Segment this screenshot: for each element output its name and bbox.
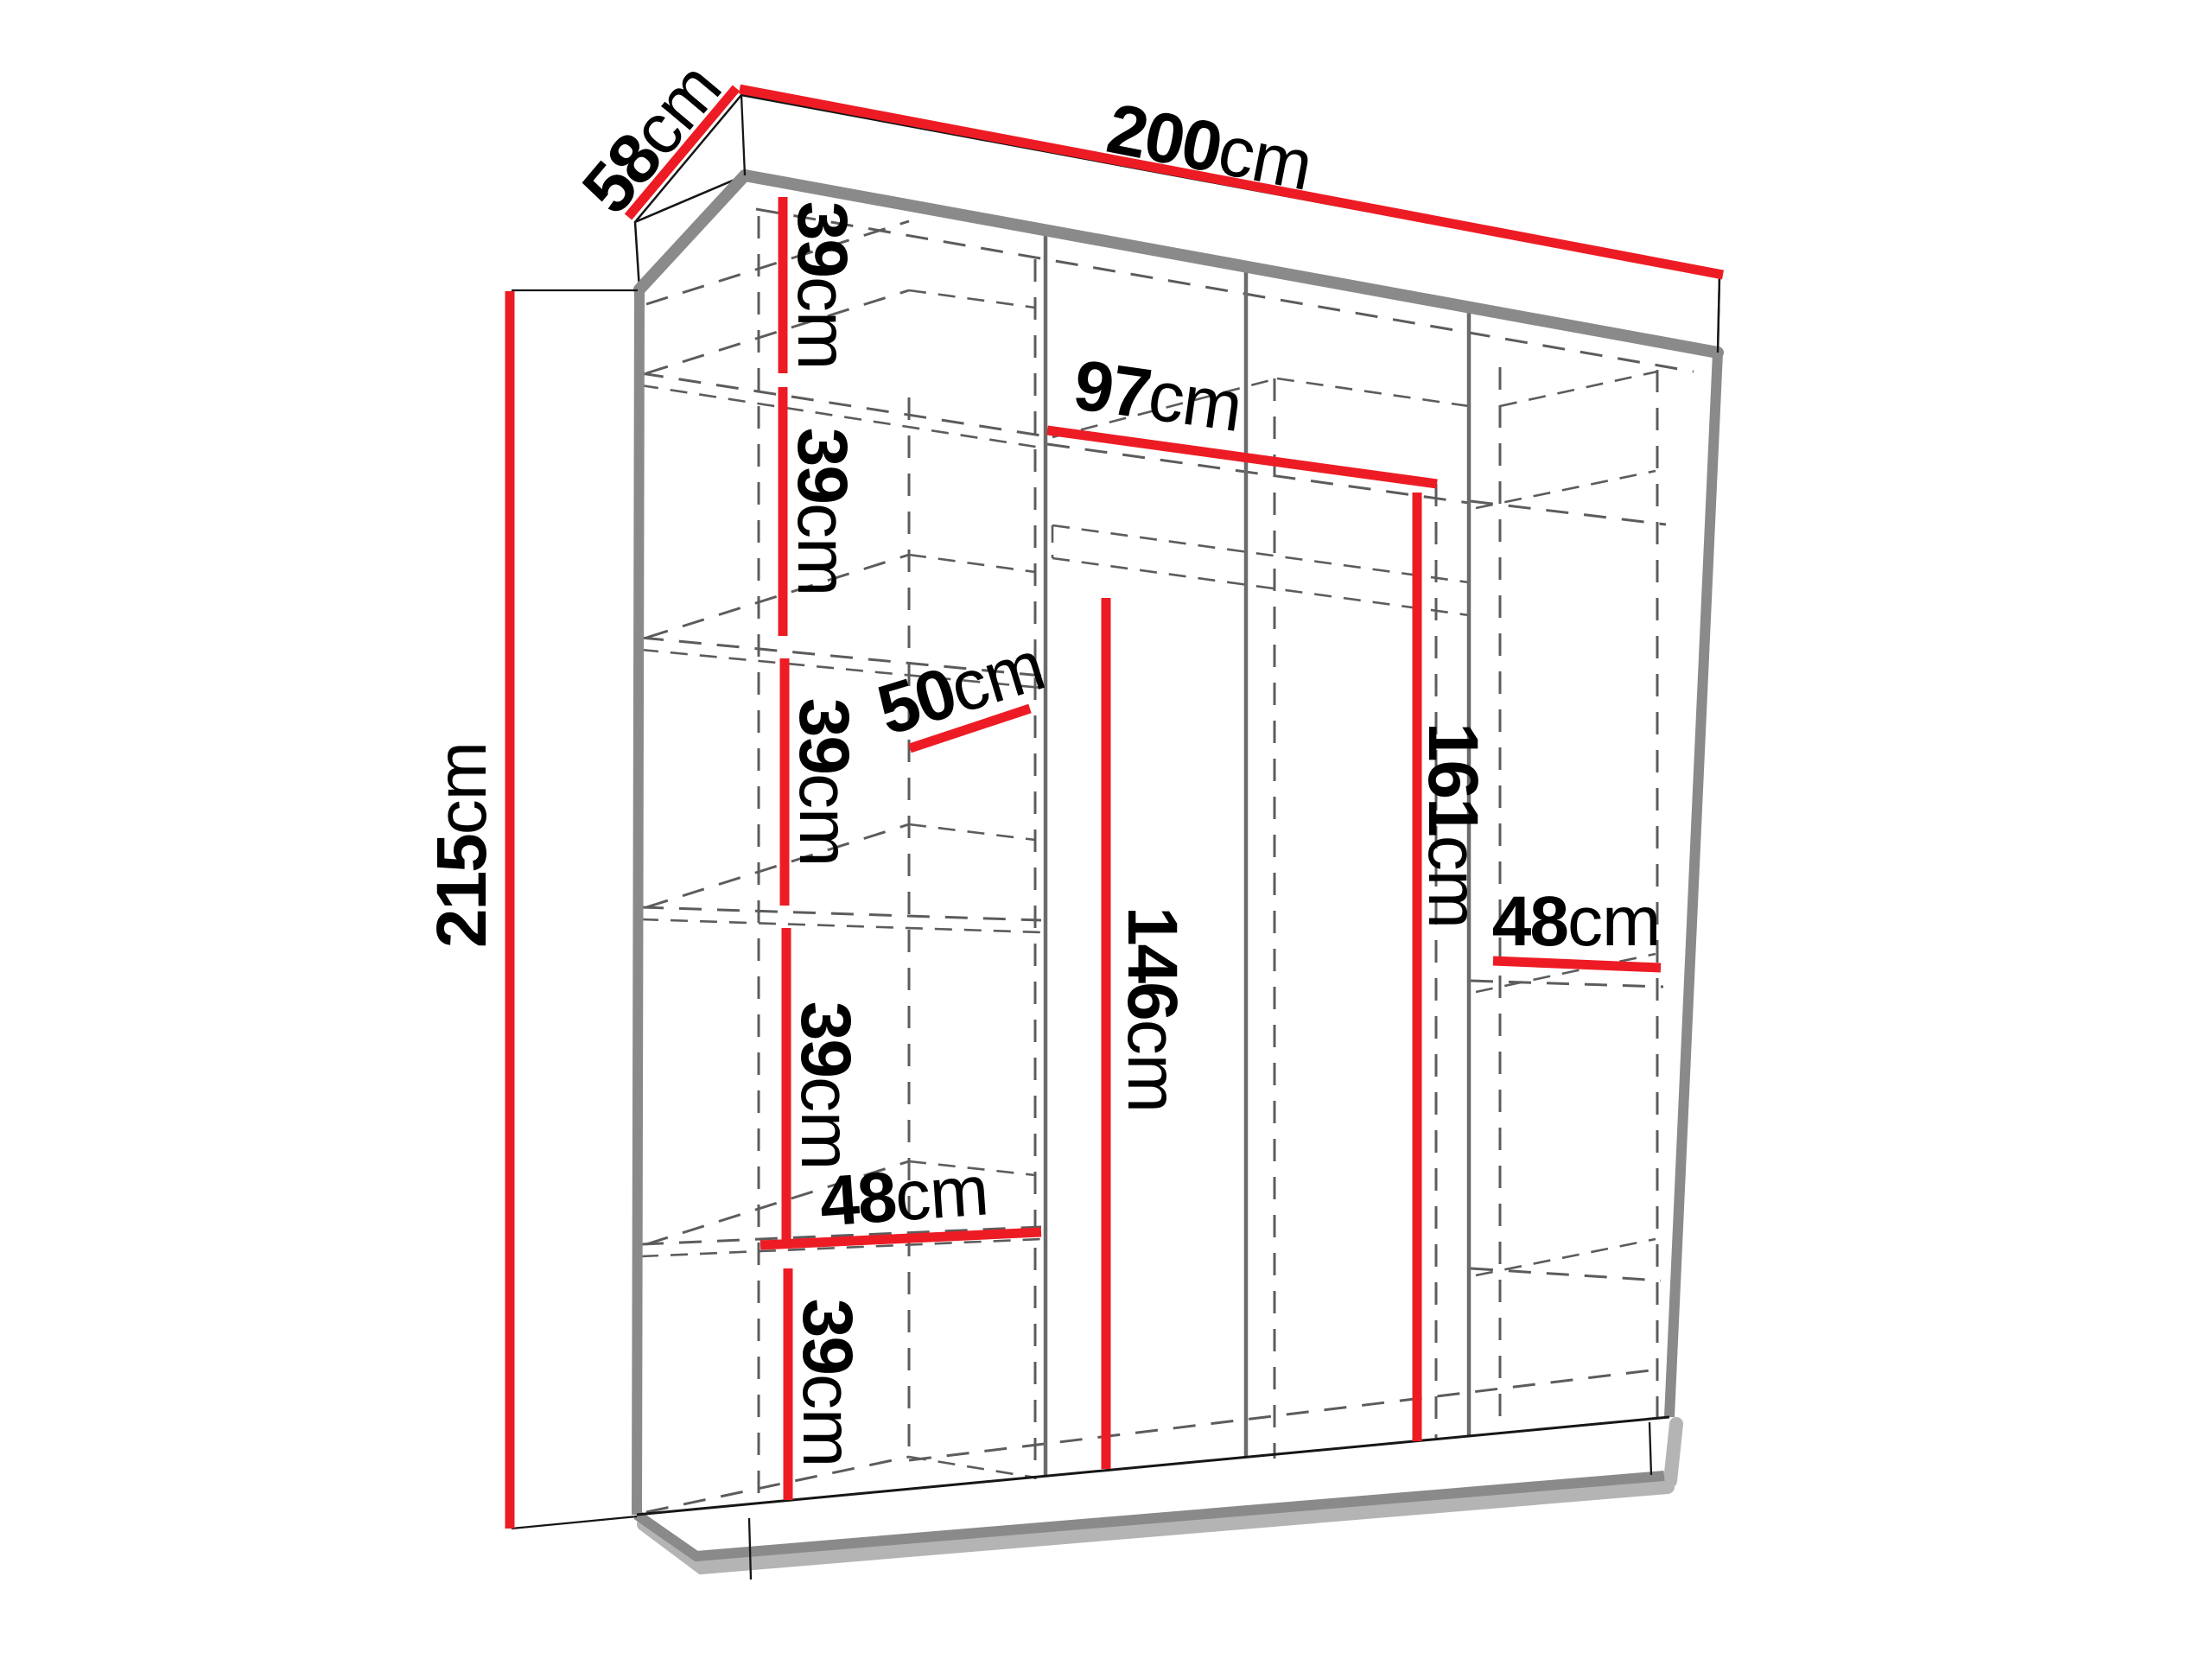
dimension-inner-height-left-label: 146cm — [1114, 906, 1192, 1112]
dimension-inner-height-right-label: 161cm — [1414, 722, 1493, 928]
dimension-shelf-width-right: 48cm — [1492, 882, 1661, 969]
dimension-shelf1-label: 39cm — [784, 201, 862, 370]
dimension-height: 215cm — [423, 291, 511, 1529]
dimension-shelf2-label: 39cm — [784, 428, 862, 596]
dimension-shelf3-label: 39cm — [785, 698, 864, 867]
right-bottom-shadow — [1670, 1424, 1676, 1481]
diagram-canvas: 58cm 200cm 215cm 39cm 39cm 39cm 39cm — [0, 0, 2212, 1659]
height-tick-bottom — [512, 1516, 637, 1529]
dimension-shelf4-label: 39cm — [787, 1001, 866, 1170]
dimension-bottom-width-left-label: 48cm — [817, 1151, 990, 1241]
dimension-shelf-width-right-label: 48cm — [1492, 882, 1661, 961]
dimension-height-label: 215cm — [423, 742, 501, 948]
left-front-edge — [637, 289, 639, 1515]
wardrobe-dimension-diagram: 58cm 200cm 215cm 39cm 39cm 39cm 39cm — [0, 0, 2212, 1659]
dimension-shelf5-label: 39cm — [789, 1299, 868, 1467]
dimension-shelf1: 39cm — [783, 197, 862, 373]
dimension-shelf5: 39cm — [788, 1268, 868, 1500]
